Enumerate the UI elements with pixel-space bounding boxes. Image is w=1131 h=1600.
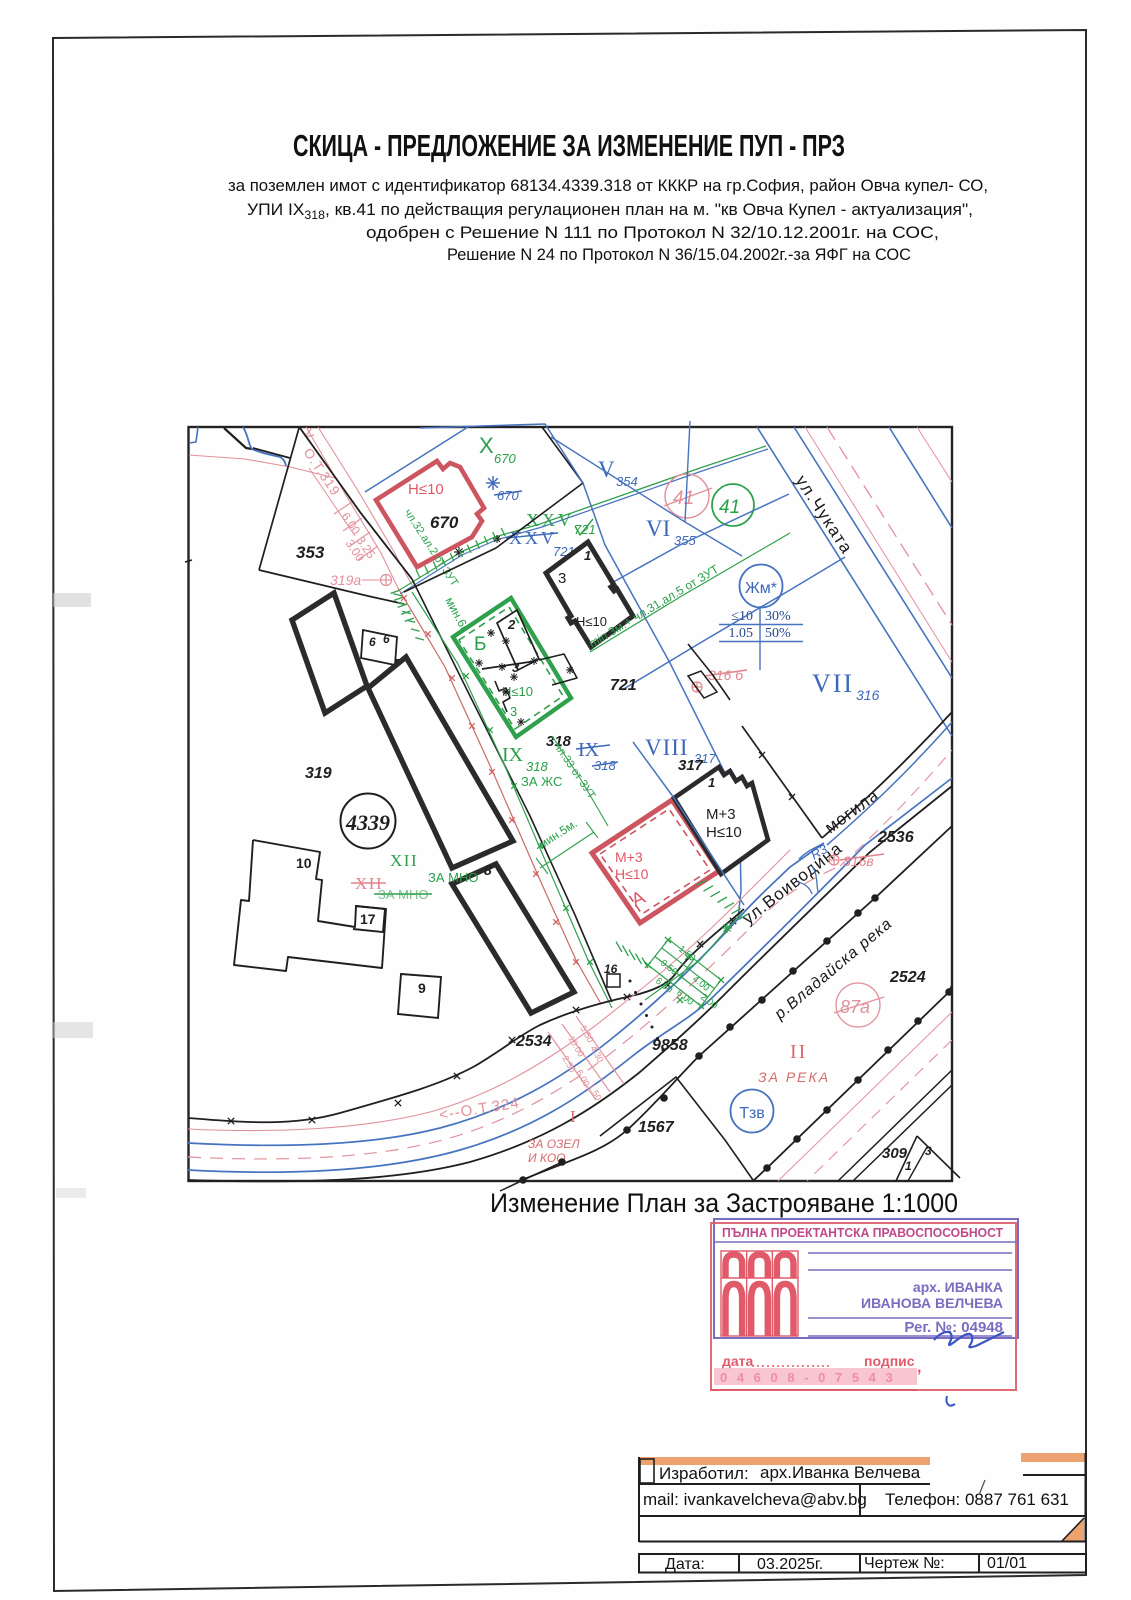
svg-text:ЗА ЖС: ЗА ЖС — [521, 774, 562, 789]
svg-text:ПЪЛНА ПРОЕКТАНТСКА ПРАВОСПОСОБ: ПЪЛНА ПРОЕКТАНТСКА ПРАВОСПОСОБНОСТ — [722, 1225, 1003, 1240]
svg-text:XII: XII — [390, 851, 418, 870]
svg-text:X: X — [479, 433, 494, 458]
svg-text:V: V — [598, 457, 615, 482]
svg-text:317: 317 — [678, 757, 704, 774]
svg-text:СКИЦА - ПРЕДЛОЖЕНИЕ ЗА ИЗМЕНЕН: СКИЦА - ПРЕДЛОЖЕНИЕ ЗА ИЗМЕНЕНИЕ ПУП - П… — [293, 128, 845, 163]
svg-text:VII: VII — [812, 669, 854, 698]
svg-text:IX: IX — [502, 744, 524, 766]
svg-text:50%: 50% — [765, 626, 791, 641]
svg-text:XXV: XXV — [509, 528, 557, 548]
svg-text:VI: VI — [646, 516, 670, 541]
svg-text:Б: Б — [474, 634, 486, 655]
svg-text:1: 1 — [905, 1159, 912, 1173]
svg-text:Тзв: Тзв — [739, 1105, 765, 1122]
svg-text:Чертеж №:: Чертеж №: — [864, 1555, 945, 1572]
svg-text:1.05: 1.05 — [729, 626, 754, 641]
svg-text:H≤10: H≤10 — [408, 481, 444, 498]
svg-text:ИВАНОВА ВЕЛЧЕВА: ИВАНОВА ВЕЛЧЕВА — [861, 1295, 1003, 1311]
svg-text:Н≤10: Н≤10 — [706, 824, 742, 841]
svg-text:03.2025г.: 03.2025г. — [757, 1556, 823, 1573]
svg-text:319а: 319а — [330, 572, 361, 588]
svg-text:H≤10: H≤10 — [576, 614, 607, 629]
svg-text:3: 3 — [558, 570, 566, 587]
svg-text:,: , — [917, 1359, 921, 1376]
svg-text:М+3: М+3 — [615, 849, 643, 865]
svg-text:Дата:: Дата: — [665, 1556, 705, 1573]
svg-text:II: II — [790, 1041, 807, 1063]
svg-text:670: 670 — [494, 451, 516, 466]
svg-text:316: 316 — [856, 687, 880, 703]
svg-text:3: 3 — [512, 660, 520, 675]
svg-text:ЗА ОЗЕЛ: ЗА ОЗЕЛ — [528, 1137, 580, 1151]
svg-text:319: 319 — [305, 765, 332, 782]
svg-text:1567: 1567 — [638, 1119, 675, 1136]
svg-text:Жм*: Жм* — [745, 580, 777, 597]
svg-text:УПИ IX318, кв.41 по действащия: УПИ IX318, кв.41 по действащия регулацио… — [247, 200, 973, 222]
svg-text:4339: 4339 — [345, 810, 390, 835]
svg-text:Рег. №: 04948: Рег. №: 04948 — [904, 1319, 1003, 1336]
svg-text:354: 354 — [616, 474, 638, 489]
svg-text:за поземлен имот с идентификат: за поземлен имот с идентификатор 68134.4… — [228, 176, 988, 195]
svg-text:ЗА МНО: ЗА МНО — [428, 870, 478, 885]
svg-text:2: 2 — [507, 617, 516, 632]
svg-text:6: 6 — [369, 635, 376, 649]
svg-text:Телефон: 0887 761 631: Телефон: 0887 761 631 — [885, 1490, 1069, 1509]
svg-text:353: 353 — [296, 543, 325, 562]
svg-text:Изработил:: Изработил: — [659, 1464, 749, 1483]
svg-text:3: 3 — [925, 1144, 932, 1158]
svg-text:≤10: ≤10 — [731, 609, 753, 624]
svg-text:318: 318 — [526, 759, 548, 774]
svg-text:2534: 2534 — [515, 1033, 552, 1050]
svg-text:16: 16 — [604, 962, 618, 976]
svg-text:721: 721 — [610, 677, 637, 694]
svg-text:41: 41 — [719, 497, 740, 518]
svg-text:ЗА РЕКА: ЗА РЕКА — [758, 1069, 830, 1085]
svg-text:309: 309 — [882, 1145, 908, 1162]
svg-text:2536: 2536 — [877, 829, 914, 846]
svg-text:17: 17 — [360, 911, 376, 927]
svg-text:01/01: 01/01 — [987, 1555, 1027, 1572]
svg-text:одобрен с Решение N 111 по Про: одобрен с Решение N 111 по Протокол N 32… — [366, 223, 939, 242]
svg-text:2524: 2524 — [889, 969, 926, 986]
svg-text:9858: 9858 — [652, 1037, 688, 1054]
svg-text:9: 9 — [418, 980, 426, 996]
svg-text:30%: 30% — [765, 609, 791, 624]
svg-text:М+3: М+3 — [706, 806, 736, 823]
svg-text:подпис: подпис — [864, 1353, 915, 1369]
svg-text:mail: ivankavelcheva@abv.bg: mail: ivankavelcheva@abv.bg — [643, 1490, 867, 1509]
svg-text:8: 8 — [484, 862, 492, 878]
svg-text:Решение N 24 по Протокол N 36/: Решение N 24 по Протокол N 36/15.04.2002… — [447, 245, 911, 264]
svg-text:10: 10 — [296, 855, 312, 871]
svg-text:Н≤10: Н≤10 — [615, 866, 649, 882]
svg-text:670: 670 — [497, 488, 519, 503]
svg-text:дата: дата — [722, 1353, 754, 1369]
svg-text:3: 3 — [510, 704, 517, 719]
svg-text:670: 670 — [430, 513, 459, 532]
svg-text:1: 1 — [708, 775, 715, 790]
svg-text:6: 6 — [383, 632, 390, 646]
svg-text:арх.Иванка Велчева: арх.Иванка Велчева — [760, 1463, 921, 1482]
svg-text:0 4 6 0 8 - 0 7 5 4 3: 0 4 6 0 8 - 0 7 5 4 3 — [720, 1370, 896, 1385]
svg-text:I: I — [570, 1107, 576, 1126]
svg-text:1: 1 — [584, 548, 591, 563]
svg-text:арх. ИВАНКА: арх. ИВАНКА — [913, 1279, 1003, 1295]
svg-text:Изменение План за Застрояване: Изменение План за Застрояване 1:1000 — [490, 1188, 958, 1218]
